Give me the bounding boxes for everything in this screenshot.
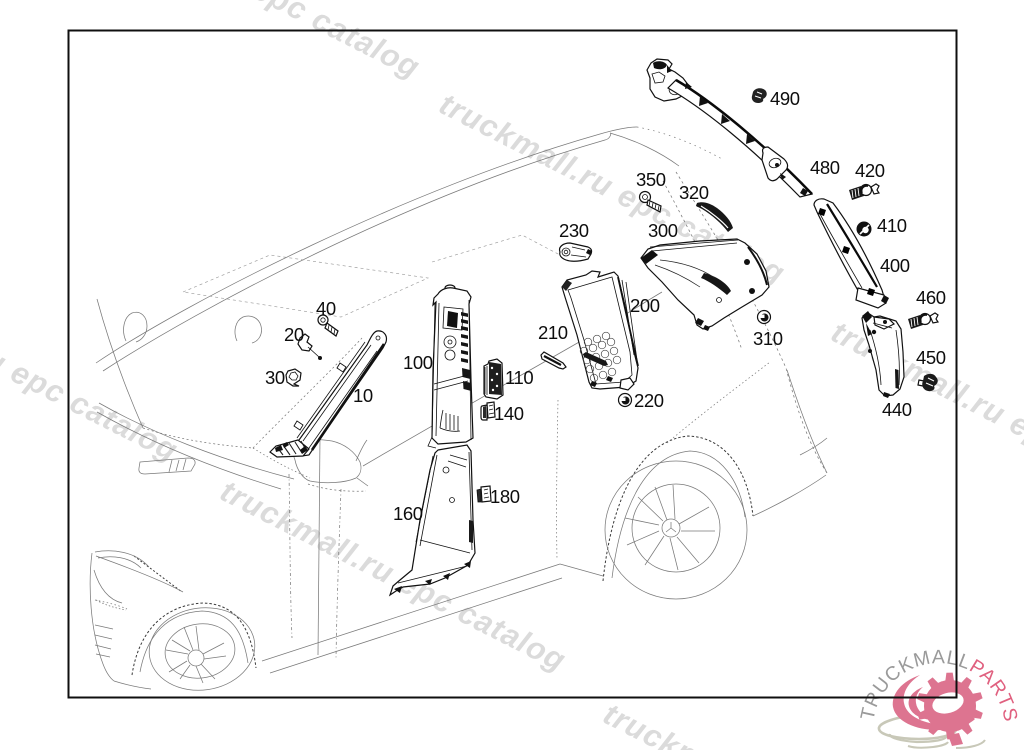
svg-text:460: 460: [916, 287, 946, 308]
svg-text:100: 100: [403, 352, 433, 373]
svg-text:140: 140: [494, 403, 524, 424]
svg-text:40: 40: [316, 298, 336, 319]
svg-text:180: 180: [490, 486, 520, 507]
svg-text:480: 480: [810, 157, 840, 178]
svg-text:450: 450: [916, 347, 946, 368]
svg-text:10: 10: [353, 385, 373, 406]
svg-text:220: 220: [634, 390, 664, 411]
svg-text:300: 300: [648, 220, 678, 241]
svg-text:490: 490: [770, 88, 800, 109]
svg-text:160: 160: [393, 503, 423, 524]
svg-text:410: 410: [877, 215, 907, 236]
svg-text:20: 20: [284, 324, 304, 345]
svg-text:320: 320: [679, 182, 709, 203]
svg-text:230: 230: [559, 220, 589, 241]
svg-text:200: 200: [630, 295, 660, 316]
svg-text:310: 310: [753, 328, 783, 349]
svg-text:30: 30: [265, 367, 285, 388]
svg-text:420: 420: [855, 160, 885, 181]
svg-text:350: 350: [636, 169, 666, 190]
svg-text:210: 210: [538, 322, 568, 343]
svg-text:440: 440: [882, 399, 912, 420]
svg-text:110: 110: [505, 367, 533, 388]
svg-text:400: 400: [880, 255, 910, 276]
